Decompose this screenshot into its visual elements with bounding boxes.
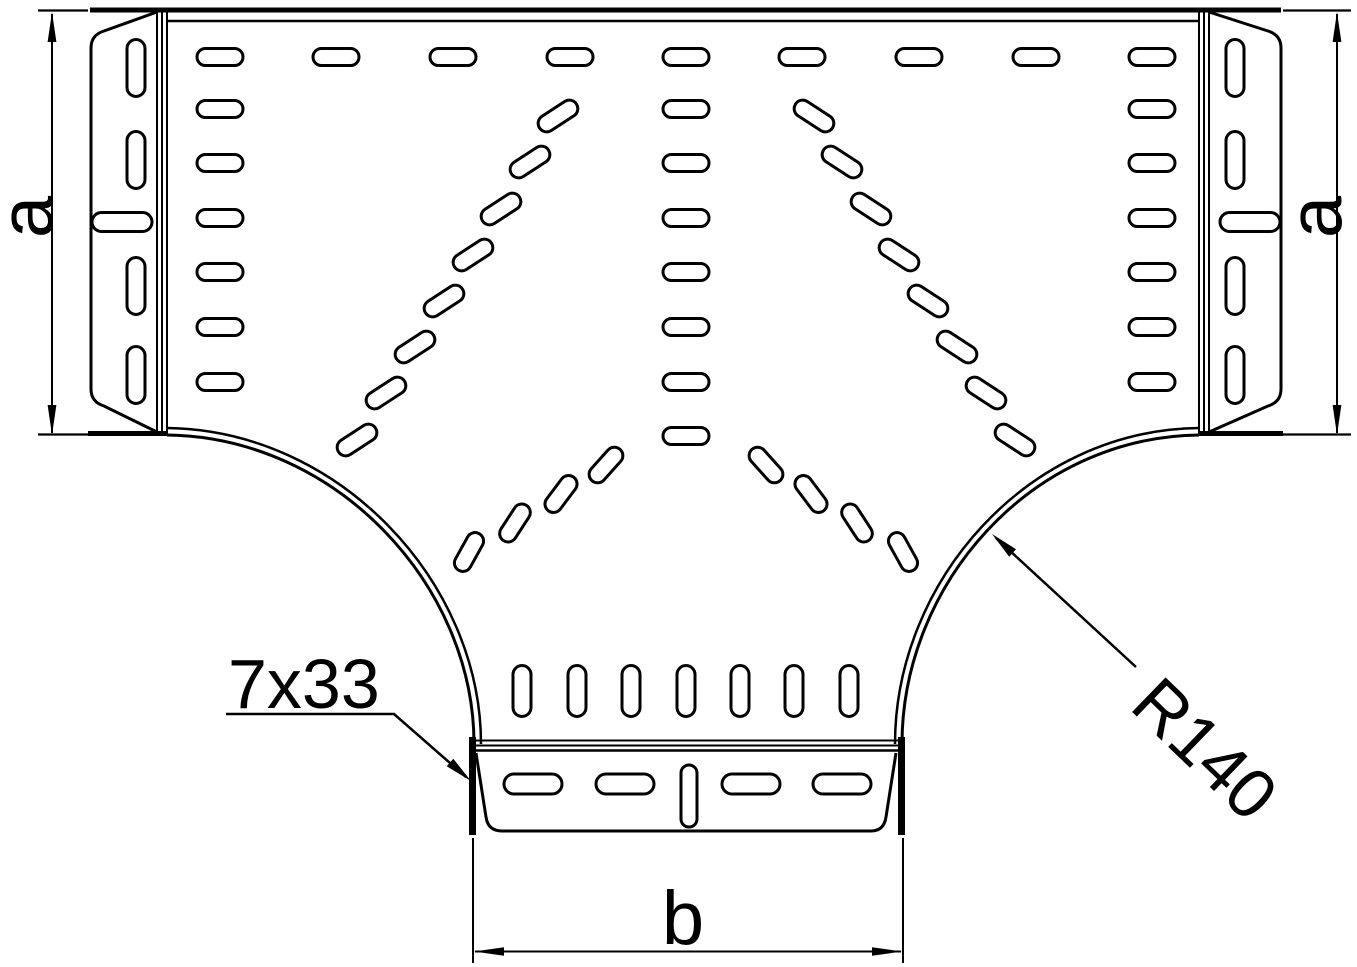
slot-hole — [334, 421, 380, 459]
dim-label-b: b — [662, 876, 704, 961]
slot-hole — [197, 319, 243, 336]
slot-hole — [1129, 155, 1175, 172]
slot-hole — [596, 774, 654, 794]
dimension-b: b — [473, 838, 903, 963]
slot-hole — [197, 49, 243, 66]
slot-hole — [785, 666, 803, 717]
slot-hole — [430, 49, 476, 66]
slot-hole — [731, 666, 749, 717]
slot-hole — [392, 328, 438, 366]
right-inner-fan — [746, 444, 921, 575]
flange-slot-row — [504, 774, 871, 794]
slot-hole — [681, 765, 697, 827]
left-connector-plate — [91, 12, 157, 432]
right-seam — [1199, 8, 1209, 434]
dim-label-a-left: a — [0, 195, 70, 238]
slot-hole — [586, 444, 627, 487]
slot-hole — [813, 774, 871, 794]
slot-hole — [1226, 258, 1244, 315]
slot-hole — [934, 328, 980, 366]
arrowhead-down-icon — [48, 405, 57, 435]
slot-hole — [92, 213, 152, 232]
slot-hole — [1220, 213, 1280, 232]
slot-hole — [421, 282, 467, 320]
slot-hole — [840, 666, 858, 717]
arrowhead-up-icon — [1333, 12, 1342, 42]
flange-left-wall-bar — [469, 737, 476, 835]
callout-7x33: 7x33 — [226, 645, 471, 781]
leader-line — [226, 714, 466, 777]
left-inner-fan — [451, 444, 626, 575]
slot-hole — [746, 444, 787, 487]
slot-hole — [885, 530, 920, 575]
arrowhead-down-icon — [1333, 405, 1342, 435]
slot-hole — [1129, 101, 1175, 118]
left-column — [197, 101, 243, 391]
slot-hole — [663, 264, 709, 281]
slot-hole — [127, 347, 145, 404]
right-column — [1129, 101, 1175, 391]
slot-hole — [197, 374, 243, 391]
slot-hole — [507, 143, 553, 181]
slot-hole — [1226, 347, 1244, 404]
left-seam — [157, 8, 167, 434]
slot-hole — [1226, 132, 1244, 189]
right-plate-slots — [1226, 40, 1244, 404]
slot-hole — [450, 236, 496, 274]
slot-hole — [197, 264, 243, 281]
arrowhead-up-icon — [48, 12, 57, 42]
slot-hole — [838, 501, 875, 545]
right-plate-horizontal-slot — [1220, 213, 1280, 232]
slot-hole — [779, 49, 825, 66]
slot-hole — [1129, 49, 1175, 66]
slot-hole — [722, 774, 780, 794]
arrowhead-right-icon — [872, 947, 902, 956]
slot-hole — [1129, 319, 1175, 336]
slot-hole — [876, 236, 922, 274]
slot-hole — [905, 282, 951, 320]
slot-hole — [197, 210, 243, 227]
branch-slot-row — [513, 666, 858, 717]
callout-label-7x33: 7x33 — [228, 645, 380, 723]
slot-hole — [819, 143, 865, 181]
slot-hole — [127, 40, 145, 97]
slot-hole — [992, 421, 1038, 459]
leader-line — [996, 538, 1136, 667]
callout-label-r140: R140 — [1118, 663, 1293, 835]
slot-hole — [663, 374, 709, 391]
slot-hole — [663, 210, 709, 227]
slot-hole — [896, 49, 942, 66]
slot-hole — [848, 190, 894, 228]
slot-hole — [1013, 49, 1059, 66]
slot-hole — [127, 132, 145, 189]
dimension-a-right: a — [1274, 11, 1357, 436]
slot-hole — [1129, 210, 1175, 227]
slot-hole — [1226, 40, 1244, 97]
slot-hole — [127, 258, 145, 315]
slot-hole — [792, 472, 831, 516]
slot-hole — [963, 374, 1009, 412]
left-diagonal-fan — [334, 97, 581, 459]
drawing-canvas: a a b 7x33 R140 — [0, 0, 1357, 967]
slot-hole — [791, 97, 837, 135]
slot-hole — [547, 49, 593, 66]
left-plate-horizontal-slot — [92, 213, 152, 232]
center-column — [663, 101, 709, 445]
slot-hole — [568, 666, 586, 717]
dim-label-a-right: a — [1274, 195, 1357, 238]
left-plate-slots — [127, 40, 145, 404]
arrowhead-left-icon — [474, 947, 504, 956]
slot-hole — [363, 374, 409, 412]
slot-hole — [677, 666, 695, 717]
slot-hole — [535, 97, 581, 135]
slot-hole — [663, 319, 709, 336]
slot-hole — [513, 666, 531, 717]
slot-hole — [478, 190, 524, 228]
slot-hole — [504, 774, 562, 794]
bottom-connector-flange — [469, 737, 905, 835]
tee-technical-drawing: a a b 7x33 R140 — [0, 0, 1357, 967]
slot-hole — [496, 501, 533, 545]
slot-hole — [622, 666, 640, 717]
flange-right-wall-bar — [898, 737, 905, 835]
slot-hole — [197, 101, 243, 118]
top-row — [197, 49, 1175, 66]
slot-hole — [663, 101, 709, 118]
slot-hole — [313, 49, 359, 66]
slot-hole — [1129, 374, 1175, 391]
flange-center-slot — [681, 765, 697, 827]
dimension-a-left: a — [0, 11, 88, 436]
slot-hole — [1129, 264, 1175, 281]
callout-r140: R140 — [992, 534, 1292, 835]
slot-hole — [663, 428, 709, 445]
slot-hole — [197, 155, 243, 172]
slot-hole — [451, 530, 486, 575]
right-diagonal-fan — [791, 97, 1038, 459]
slot-hole — [542, 472, 581, 516]
slot-hole — [663, 155, 709, 172]
slot-hole — [663, 49, 709, 66]
